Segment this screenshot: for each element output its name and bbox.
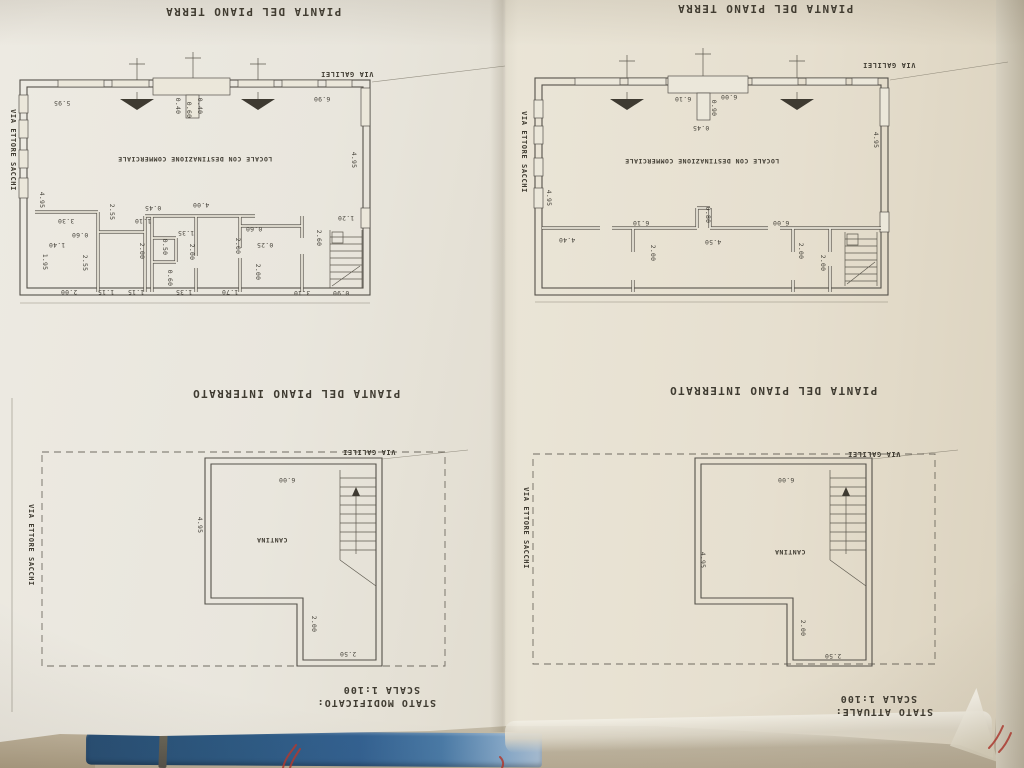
- entrance-arrow-icon: [780, 99, 814, 110]
- street-label: VIA GALILEI: [321, 70, 374, 78]
- staircase: [845, 232, 877, 286]
- room-label: LOCALE CON DESTINAZIONE COMMERCIALE: [625, 157, 779, 165]
- stair-arrow-head: [842, 487, 850, 496]
- dim-label: 0.50: [161, 239, 169, 256]
- dim-label: 2.00: [797, 243, 805, 260]
- dim-label: 2.00: [61, 288, 78, 296]
- dim-label: 2.00: [799, 620, 807, 637]
- entrance-recess: [697, 93, 710, 120]
- street-label: VIA ETTORE SACCHI: [520, 111, 528, 193]
- dim-label: 1.15: [98, 288, 115, 296]
- dim-label: 4.50: [705, 238, 722, 246]
- street-label: VIA ETTORE SACCHI: [522, 487, 530, 569]
- dim-label: 6.10: [675, 95, 692, 103]
- property-boundary-dashed: [533, 454, 935, 664]
- entrance-porch: [668, 76, 748, 93]
- stair-arrow-head: [352, 487, 360, 496]
- property-boundary-dashed: [42, 452, 445, 666]
- dim-label: 2.50: [825, 652, 842, 660]
- dim-label: 0.90: [333, 289, 350, 297]
- dim-label: 2.60: [315, 230, 323, 247]
- dim-label: 1.20: [338, 214, 355, 222]
- staircase: [340, 470, 376, 586]
- dim-label: 0.90: [710, 100, 718, 117]
- dim-label: 2.50: [340, 650, 357, 658]
- room-label: CANTINA: [775, 548, 806, 556]
- dim-label: 4.95: [872, 132, 880, 149]
- dim-label: 0.60: [185, 102, 193, 119]
- dim-label: 2.55: [108, 204, 116, 221]
- dim-label: 3.30: [58, 217, 75, 225]
- dim-label: 1.40: [49, 241, 66, 249]
- dim-label: 6.90: [314, 95, 331, 103]
- plans-overlay: VIA GALILEIVIA ETTORE SACCHILOCALE CON D…: [0, 0, 1024, 768]
- dim-label: 1.15: [128, 288, 145, 296]
- dim-label: 0.45: [693, 124, 710, 132]
- survey-tick: [619, 48, 805, 78]
- entrance-arrow-icon: [241, 99, 275, 110]
- dim-label: 0.60: [166, 270, 174, 287]
- street-label: VIA GALILEI: [343, 448, 396, 456]
- dim-label: 0.60: [72, 231, 89, 239]
- street-label: VIA ETTORE SACCHI: [9, 109, 17, 191]
- red-scribble: [500, 757, 503, 768]
- dim-label: 2.00: [310, 616, 318, 633]
- dim-label: 4.95: [545, 190, 553, 207]
- dim-label: 0.25: [257, 241, 274, 249]
- entrance-arrow-icon: [120, 99, 154, 110]
- dim-label: 0.40: [174, 98, 182, 115]
- dim-label: 2.00: [234, 238, 242, 255]
- street-label: VIA GALILEI: [863, 61, 916, 69]
- street-label: VIA GALILEI: [848, 450, 901, 458]
- dim-label: 6.10: [633, 219, 650, 227]
- dim-label: 2.00: [819, 255, 827, 272]
- entrance-porch: [153, 78, 230, 95]
- dim-label: 2.00: [138, 243, 146, 260]
- dim-label: 6.00: [778, 476, 795, 484]
- red-marker-scribbles: [283, 726, 1011, 768]
- dim-label: 6.00: [279, 476, 296, 484]
- dim-label: 4.95: [38, 192, 46, 209]
- left-ground-floor-plan: VIA GALILEIVIA ETTORE SACCHILOCALE CON D…: [9, 52, 505, 303]
- dim-label: 4.00: [193, 201, 210, 209]
- dim-label: 4.95: [699, 552, 707, 569]
- dim-label: 1.35: [176, 288, 193, 296]
- dim-label: 1.70: [222, 288, 239, 296]
- dim-label: 2.00: [649, 245, 657, 262]
- cellar-inner-wall: [701, 464, 866, 660]
- dim-label: 4.95: [350, 152, 358, 169]
- street-label: VIA ETTORE SACCHI: [27, 504, 35, 586]
- dim-label: 1.35: [178, 229, 195, 237]
- staircase: [330, 230, 362, 288]
- dim-label: 5.95: [54, 99, 71, 107]
- street-line: [372, 66, 505, 82]
- dim-label: 6.00: [773, 219, 790, 227]
- dim-label: 2.00: [188, 244, 196, 261]
- right-basement-plan: VIA GALILEIVIA ETTORE SACCHICANTINA6.004…: [522, 450, 958, 666]
- dim-label: 0.80: [704, 207, 712, 224]
- dim-label: 0.45: [145, 204, 162, 212]
- survey-tick: [129, 52, 266, 80]
- cellar-inner-wall: [211, 464, 376, 660]
- staircase: [830, 470, 866, 586]
- dim-label: 0.60: [246, 225, 263, 233]
- dim-label: 3.10: [294, 289, 311, 297]
- entrance-arrow-icon: [610, 99, 644, 110]
- left-basement-plan: VIA GALILEIVIA ETTORE SACCHICANTINA6.004…: [12, 398, 468, 712]
- dim-label: 2.55: [81, 255, 89, 272]
- right-ground-floor-plan: VIA GALILEIVIA ETTORE SACCHILOCALE CON D…: [520, 48, 1008, 302]
- dim-label: 4.40: [559, 236, 576, 244]
- dim-label: 0.40: [196, 98, 204, 115]
- room-label: CANTINA: [257, 536, 288, 544]
- red-scribble: [989, 726, 1011, 752]
- room-label: LOCALE CON DESTINAZIONE COMMERCIALE: [118, 155, 272, 163]
- red-scribble: [283, 745, 296, 768]
- dim-label: 2.00: [254, 264, 262, 281]
- dim-label: 4.95: [196, 517, 204, 534]
- dim-label: 1.95: [41, 254, 49, 271]
- dim-label: 1.10: [135, 217, 152, 225]
- dim-label: 6.00: [721, 93, 738, 101]
